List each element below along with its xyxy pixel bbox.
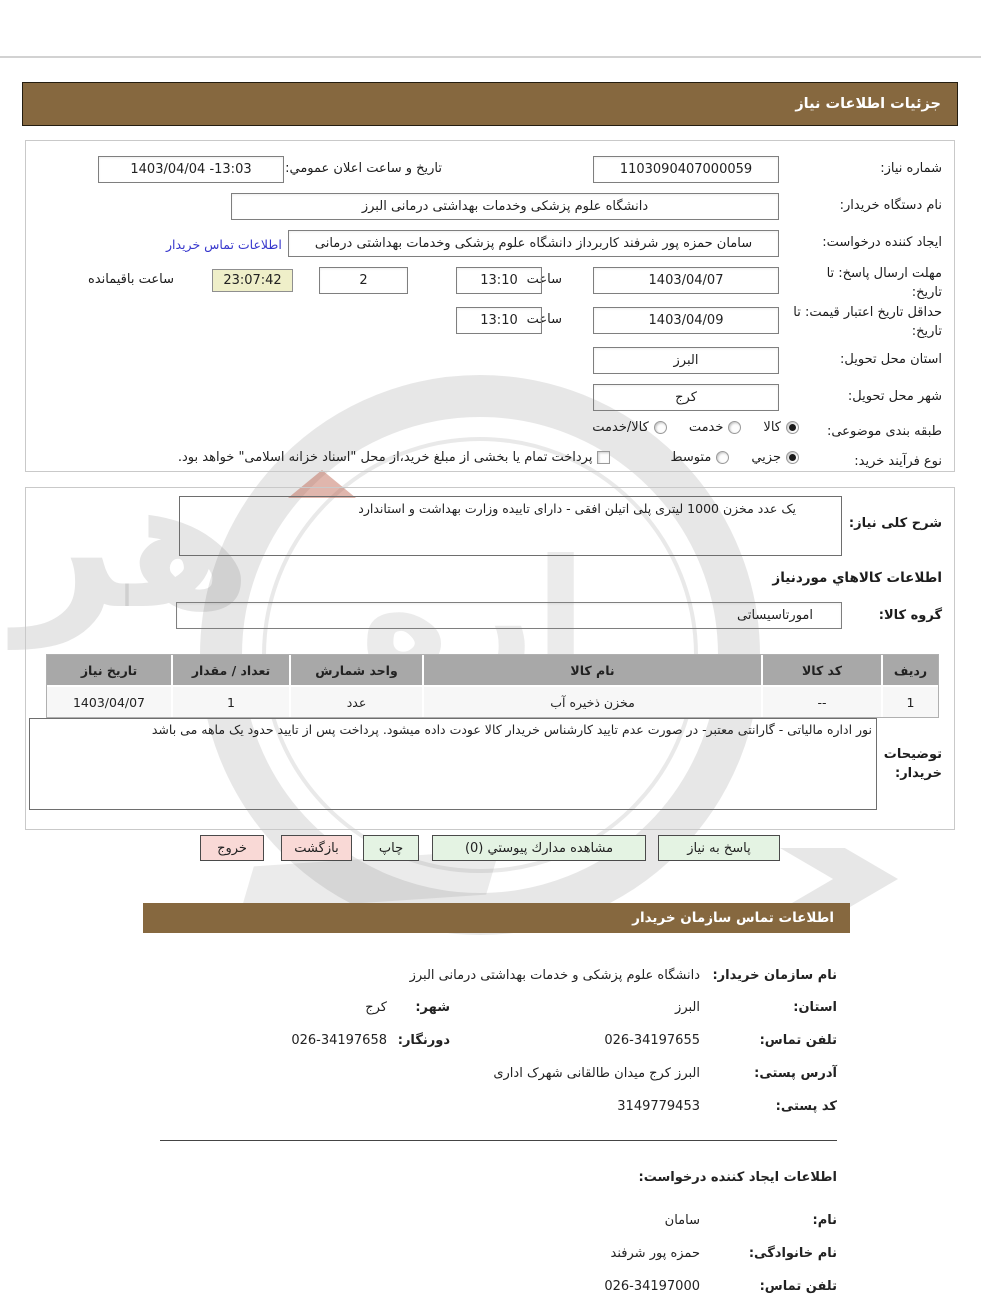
reply-time-field[interactable]: 13:10 (456, 267, 542, 294)
address-value: البرز کرج میدان طالقانی شهرک اداری (493, 1066, 700, 1081)
org-name-row: نام سازمان خریدار: دانشگاه علوم پزشکی و … (160, 968, 837, 988)
details-header-bar: جزئیات اطلاعات نیاز (22, 82, 958, 126)
goods-table-row: 1 -- مخزن ذخیره آب عدد 1 1403/04/07 (47, 687, 938, 717)
buyer-org-field[interactable]: دانشگاه علوم پزشکی وخدمات بهداشتی درمانی… (231, 193, 779, 220)
process-radio-1[interactable] (716, 451, 729, 464)
delivery-province-label: استان محل تحویل: (840, 352, 942, 367)
delivery-city-value: کرج (675, 390, 697, 405)
delivery-city-label: شهر محل تحویل: (848, 389, 942, 404)
first-name-label: نام: (813, 1213, 838, 1228)
contact-header-bar: اطلاعات تماس سازمان خریدار (143, 903, 850, 933)
classification-radio-1[interactable] (728, 421, 741, 434)
request-creator-field[interactable]: سامان حمزه پور شرفند کاربرداز دانشگاه عل… (288, 230, 779, 257)
reply-deadline-label: مهلت ارسال پاسخ: تا تاریخ: (824, 265, 942, 303)
org-name-value: دانشگاه علوم پزشکی و خدمات بهداشتی درمان… (410, 968, 700, 983)
province-label: استان: (793, 1000, 837, 1015)
process-option-label: جزيي (751, 450, 781, 465)
col-header-unit: واحد شمارش (289, 655, 422, 685)
org-name-label: نام سازمان خریدار: (712, 968, 837, 983)
need-number-field[interactable]: 1103090407000059 (593, 156, 779, 183)
countdown-timer: 23:07:42 (212, 269, 293, 292)
delivery-province-field[interactable]: البرز (593, 347, 779, 374)
goods-table-header-row: ردیف کد کالا نام کالا واحد شمارش تعداد /… (47, 655, 938, 687)
city-value: کرج (365, 1000, 387, 1015)
creator-last-name-row: نام خانوادگی: حمزه پور شرفند (160, 1246, 837, 1266)
province-value: البرز (675, 1000, 700, 1015)
reply-to-need-button[interactable]: پاسخ به نیاز (658, 835, 780, 861)
buyer-org-value: دانشگاه علوم پزشکی وخدمات بهداشتی درمانی… (362, 199, 648, 214)
cell-quantity: 1 (171, 687, 289, 717)
need-description-textarea[interactable]: یک عدد مخزن 1000 لیتری پلی اتیلن افقی - … (179, 496, 842, 556)
fax-value: 026-34197658 (291, 1033, 387, 1048)
classification-option-label: کالا (763, 420, 781, 435)
cell-item-code: -- (761, 687, 881, 717)
back-button[interactable]: بازگشت (281, 835, 352, 861)
last-name-label: نام خانوادگی: (749, 1246, 837, 1261)
classification-radio-2[interactable] (654, 421, 667, 434)
price-validity-date: 1403/04/09 (649, 313, 724, 328)
reply-deadline-date-field[interactable]: 1403/04/07 (593, 267, 779, 294)
city-label: شهر: (415, 1000, 450, 1015)
announce-datetime-value: 1403/04/04 -13:03 (130, 162, 251, 177)
request-creator-value: سامان حمزه پور شرفند کاربرداز دانشگاه عل… (315, 236, 752, 251)
treasury-checkbox[interactable] (597, 451, 610, 464)
buyer-notes-textarea[interactable]: نور اداره مالیاتی - گارانتی معتبر- در صو… (29, 718, 877, 810)
need-info-panel: شماره نیاز: 1103090407000059 تاریخ و ساع… (25, 140, 955, 472)
first-name-value: سامان (665, 1213, 700, 1228)
creator-phone-row: تلفن تماس: 026-34197000 (160, 1279, 837, 1299)
col-header-item-name: نام کالا (422, 655, 761, 685)
process-type-radio-group: جزيي متوسط پرداخت تمام یا بخشی از مبلغ خ… (178, 450, 799, 465)
announce-datetime-field[interactable]: 1403/04/04 -13:03 (98, 156, 284, 183)
reply-deadline-date: 1403/04/07 (649, 273, 724, 288)
classification-radio-group: کالا خدمت کالا/خدمت (592, 420, 799, 435)
goods-group-label: گروه کالا: (879, 608, 942, 623)
creator-first-name-row: نام: سامان (160, 1213, 837, 1233)
need-number-value: 1103090407000059 (620, 162, 752, 177)
price-validity-label: حداقل تاریخ اعتبار قیمت: تا تاریخ: (787, 304, 942, 342)
fax-label: دورنگار: (398, 1033, 450, 1048)
phone-value: 026-34197655 (604, 1033, 700, 1048)
process-option-label: متوسط (670, 450, 711, 465)
exit-button[interactable]: خروج (200, 835, 264, 861)
province-city-row: استان: البرز شهر: کرج (160, 1000, 837, 1020)
process-radio-0[interactable] (786, 451, 799, 464)
buyer-org-label: نام دستگاه خریدار: (840, 198, 942, 213)
delivery-city-field[interactable]: کرج (593, 384, 779, 411)
creator-section-heading: اطلاعات ایجاد کننده درخواست: (639, 1170, 837, 1185)
details-header-title: جزئیات اطلاعات نیاز (795, 96, 941, 112)
col-header-quantity: تعداد / مقدار (171, 655, 289, 685)
price-time-value: 13:10 (480, 313, 517, 328)
buyer-notes-text: نور اداره مالیاتی - گارانتی معتبر- در صو… (152, 722, 872, 737)
goods-group-value: امورتاسیساتی (737, 608, 813, 623)
need-description-label: شرح کلی نیاز: (849, 516, 942, 531)
col-header-row-number: ردیف (881, 655, 938, 685)
buyer-contact-link[interactable]: اطلاعات تماس خریدار (166, 237, 282, 252)
announce-datetime-label: تاریخ و ساعت اعلان عمومي: (285, 161, 442, 176)
address-row: آدرس پستی: البرز کرج میدان طالقانی شهرک … (160, 1066, 837, 1086)
need-details-page: { "colors": { "brand_brown": "#86683F", … (0, 0, 981, 1314)
need-number-label: شماره نیاز: (880, 161, 942, 176)
goods-panel: یک عدد مخزن 1000 لیتری پلی اتیلن افقی - … (25, 487, 955, 830)
process-type-label: نوع فرآیند خرید: (854, 454, 942, 469)
creator-phone-label: تلفن تماس: (760, 1279, 837, 1294)
postal-code-label: کد پستی: (776, 1099, 837, 1114)
cell-unit: عدد (289, 687, 422, 717)
classification-label: طبقه بندی موضوعی: (827, 424, 942, 439)
remaining-hours-label: ساعت باقیمانده (88, 272, 174, 287)
view-attachments-button[interactable]: مشاهده مدارك پیوستي (0) (432, 835, 646, 861)
top-divider (0, 56, 981, 58)
price-time-field[interactable]: 13:10 (456, 307, 542, 334)
phone-label: تلفن تماس: (760, 1033, 837, 1048)
cell-item-name: مخزن ذخیره آب (422, 687, 761, 717)
classification-option-label: خدمت (689, 420, 724, 435)
classification-option-label: کالا/خدمت (592, 420, 649, 435)
cell-row-number: 1 (881, 687, 938, 717)
reply-days-value: 2 (359, 273, 367, 288)
treasury-checkbox-label: پرداخت تمام یا بخشی از مبلغ خرید،از محل … (178, 450, 593, 465)
countdown-value: 23:07:42 (223, 273, 281, 288)
need-description-text: یک عدد مخزن 1000 لیتری پلی اتیلن افقی - … (358, 501, 796, 516)
postal-code-value: 3149779453 (617, 1099, 700, 1114)
phone-fax-row: تلفن تماس: 026-34197655 دورنگار: 026-341… (160, 1033, 837, 1053)
goods-table: ردیف کد کالا نام کالا واحد شمارش تعداد /… (46, 654, 939, 718)
address-label: آدرس پستی: (754, 1066, 837, 1081)
last-name-value: حمزه پور شرفند (611, 1246, 700, 1261)
delivery-province-value: البرز (674, 353, 699, 368)
print-button[interactable]: چاپ (363, 835, 419, 861)
buyer-notes-label: توضیحات خریدار: (864, 746, 942, 784)
watermark-shape-right (780, 848, 898, 910)
col-header-item-code: کد کالا (761, 655, 881, 685)
postal-code-row: کد پستی: 3149779453 (160, 1099, 837, 1119)
classification-radio-0[interactable] (786, 421, 799, 434)
goods-group-field[interactable]: امورتاسیساتی (176, 602, 842, 629)
col-header-need-date: تاریخ نیاز (47, 655, 171, 685)
cell-need-date: 1403/04/07 (47, 687, 171, 717)
reply-time-value: 13:10 (480, 273, 517, 288)
reply-days-field[interactable]: 2 (319, 267, 408, 294)
section-divider (160, 1140, 837, 1141)
price-validity-date-field[interactable]: 1403/04/09 (593, 307, 779, 334)
request-creator-label: ایجاد کننده درخواست: (822, 235, 942, 250)
goods-section-heading: اطلاعات کالاهاي موردنیاز (772, 570, 942, 586)
contact-header-title: اطلاعات تماس سازمان خریدار (632, 910, 834, 926)
creator-phone-value: 026-34197000 (604, 1279, 700, 1294)
